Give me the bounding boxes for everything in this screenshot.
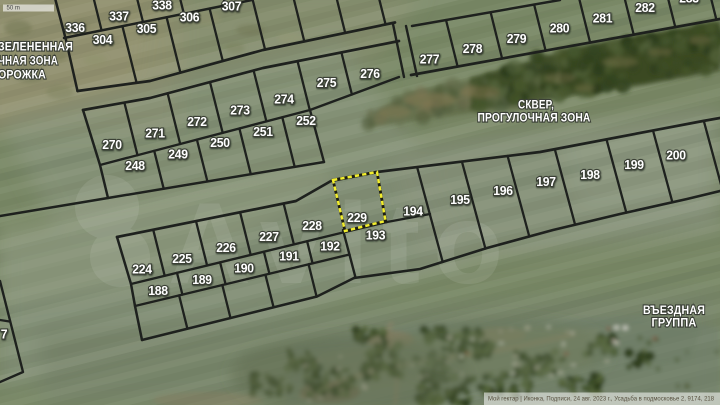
svg-text:336: 336 <box>65 20 85 35</box>
svg-text:306: 306 <box>180 10 200 25</box>
svg-text:279: 279 <box>507 31 527 46</box>
svg-text:277: 277 <box>420 52 440 67</box>
svg-text:195: 195 <box>450 192 470 207</box>
svg-text:7: 7 <box>1 327 8 342</box>
svg-text:Мой гектар | Иконка, Подписи,: Мой гектар | Иконка, Подписи, 24 авг. 20… <box>488 395 714 403</box>
svg-text:ОРОЖКА: ОРОЖКА <box>0 68 46 82</box>
svg-text:271: 271 <box>145 126 165 141</box>
svg-text:338: 338 <box>152 0 172 13</box>
svg-text:278: 278 <box>463 41 483 56</box>
svg-text:224: 224 <box>132 262 152 277</box>
svg-text:193: 193 <box>366 228 386 243</box>
svg-text:250: 250 <box>210 135 230 150</box>
svg-text:307: 307 <box>222 0 242 14</box>
svg-text:270: 270 <box>102 137 122 152</box>
svg-text:ГРУППА: ГРУППА <box>652 318 697 330</box>
svg-text:280: 280 <box>550 21 570 36</box>
svg-text:225: 225 <box>172 251 192 266</box>
svg-text:275: 275 <box>317 75 337 90</box>
svg-text:252: 252 <box>296 113 316 128</box>
svg-text:283: 283 <box>679 0 699 6</box>
svg-text:249: 249 <box>168 147 188 162</box>
svg-text:СКВЕР,: СКВЕР, <box>518 98 554 112</box>
svg-text:273: 273 <box>230 103 250 118</box>
svg-text:191: 191 <box>279 249 299 264</box>
svg-text:248: 248 <box>125 158 145 173</box>
svg-text:228: 228 <box>302 218 322 233</box>
svg-text:200: 200 <box>666 148 686 163</box>
svg-text:197: 197 <box>536 174 556 189</box>
svg-text:50 m: 50 m <box>7 5 20 11</box>
svg-text:337: 337 <box>109 9 129 24</box>
svg-text:276: 276 <box>360 66 380 81</box>
svg-text:ЧНАЯ ЗОНА: ЧНАЯ ЗОНА <box>0 54 58 68</box>
svg-text:282: 282 <box>635 0 655 15</box>
svg-text:305: 305 <box>137 21 157 36</box>
svg-text:192: 192 <box>320 239 340 254</box>
svg-text:196: 196 <box>493 183 513 198</box>
svg-text:227: 227 <box>259 229 279 244</box>
svg-text:190: 190 <box>234 261 254 276</box>
svg-text:226: 226 <box>216 240 236 255</box>
svg-text:ПРОГУЛОЧНАЯ ЗОНА: ПРОГУЛОЧНАЯ ЗОНА <box>478 111 591 125</box>
svg-text:ЗЕЛЕНЕННАЯ: ЗЕЛЕНЕННАЯ <box>0 40 73 54</box>
svg-text:198: 198 <box>580 167 600 182</box>
svg-text:281: 281 <box>593 11 613 26</box>
svg-text:274: 274 <box>274 92 294 107</box>
svg-text:194: 194 <box>403 204 423 219</box>
svg-text:229: 229 <box>347 210 367 225</box>
svg-text:189: 189 <box>192 272 212 287</box>
svg-text:304: 304 <box>93 32 113 47</box>
svg-text:188: 188 <box>148 283 168 298</box>
svg-text:199: 199 <box>624 157 644 172</box>
svg-text:251: 251 <box>253 124 273 139</box>
svg-text:272: 272 <box>187 114 207 129</box>
svg-text:ВЪЕЗДНАЯ: ВЪЕЗДНАЯ <box>643 305 705 317</box>
